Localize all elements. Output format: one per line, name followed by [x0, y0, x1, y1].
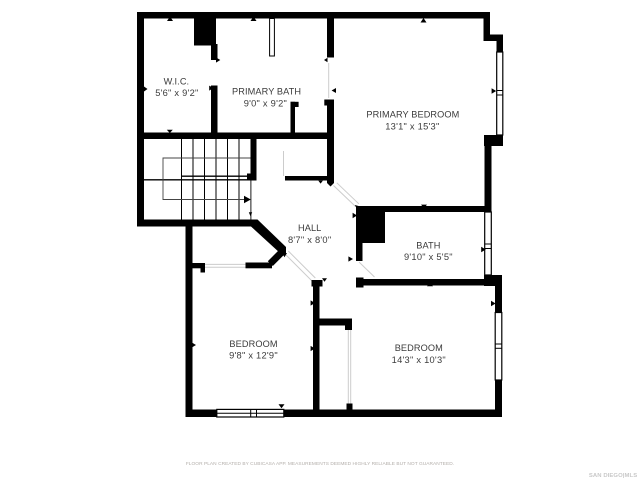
svg-text:14'3" x 10'3": 14'3" x 10'3": [392, 355, 446, 365]
svg-text:BEDROOM: BEDROOM: [395, 343, 443, 353]
svg-text:8'7" x 8'0": 8'7" x 8'0": [288, 235, 331, 245]
svg-text:W.I.C.: W.I.C.: [164, 77, 190, 87]
svg-text:PRIMARY BEDROOM: PRIMARY BEDROOM: [366, 109, 459, 119]
svg-text:9'0" x 9'2": 9'0" x 9'2": [244, 98, 287, 108]
svg-text:BEDROOM: BEDROOM: [229, 339, 277, 349]
svg-text:BATH: BATH: [416, 241, 440, 251]
svg-text:13'1" x 15'3": 13'1" x 15'3": [385, 122, 439, 132]
svg-text:9'8" x 12'9": 9'8" x 12'9": [229, 351, 278, 361]
svg-text:PRIMARY BATH: PRIMARY BATH: [232, 87, 301, 97]
svg-text:HALL: HALL: [298, 223, 321, 233]
svg-text:9'10" x 5'5": 9'10" x 5'5": [404, 252, 453, 262]
svg-text:FLOOR PLAN CREATED BY CUBICASA: FLOOR PLAN CREATED BY CUBICASA APP. MEAS…: [186, 461, 454, 467]
svg-text:5'6" x 9'2": 5'6" x 9'2": [155, 88, 198, 98]
svg-text:SAN DIEGO|MLS: SAN DIEGO|MLS: [589, 473, 637, 479]
